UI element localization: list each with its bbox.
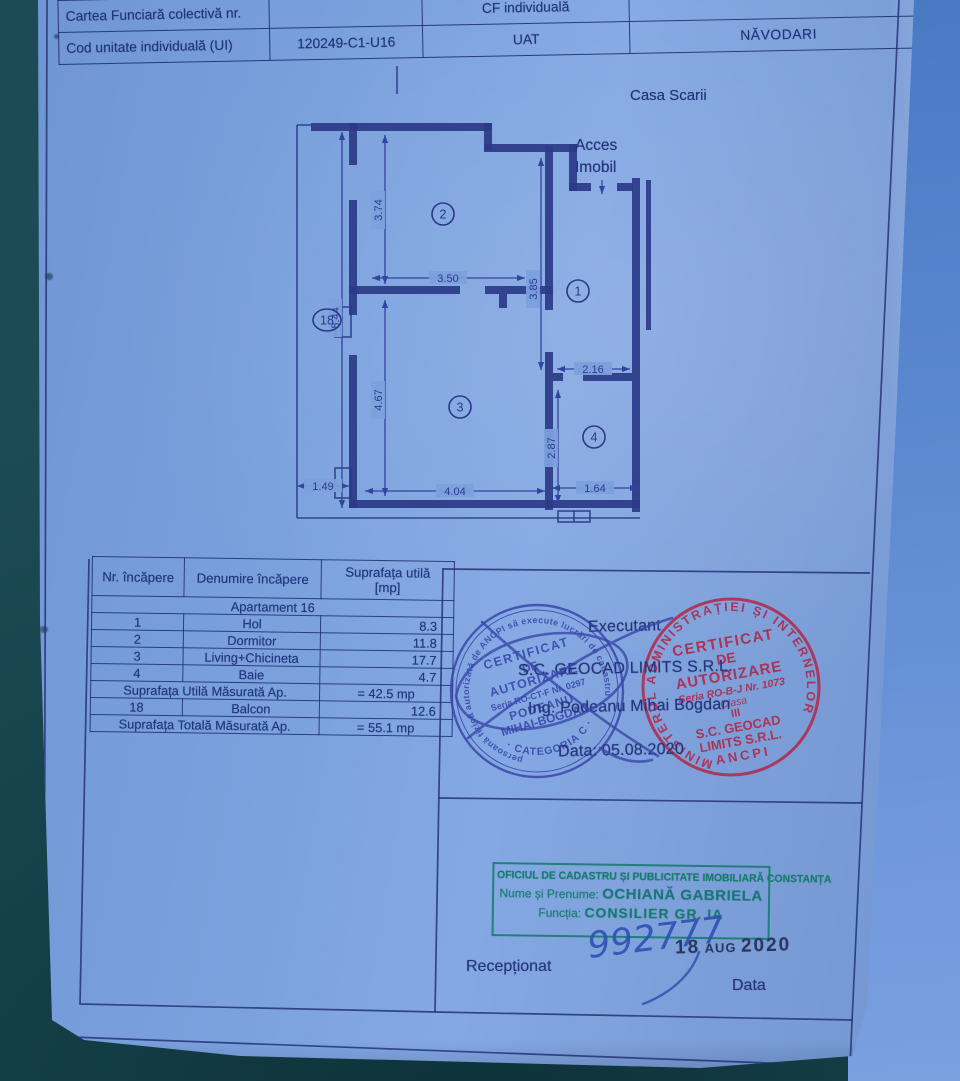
col-room-name: Denumire încăpere [184, 558, 322, 599]
dimension-label: 3.74 [373, 199, 385, 220]
plan-walls [311, 123, 651, 512]
ocpi-role-label: Funcția: [538, 906, 581, 921]
room-name: Hol [183, 614, 320, 633]
room-number-badge: 1 [575, 285, 582, 299]
header-table: Cartea Funciară colectivă nr. CF individ… [57, 0, 928, 65]
cf-collective-value [269, 0, 423, 28]
room-area: 8.3 [320, 616, 453, 635]
access-label-line1: Acces [575, 137, 617, 154]
rooms-header-row: Nr. încăpere Denumire încăpere Suprafața… [92, 557, 455, 601]
uat-value: NĂVODARI [629, 16, 928, 54]
col-room-number: Nr. încăpere [92, 557, 185, 597]
dimension-label: 3.85 [528, 278, 540, 299]
signature-scribble [440, 588, 710, 798]
total-value: = 55.1 mp [319, 718, 452, 737]
dimension-label: 3.50 [437, 273, 458, 285]
uat-label: UAT [422, 22, 630, 58]
col-room-area-line1: Suprafața utilă [345, 565, 430, 581]
floor-plan: 8.44 3.74 4.67 3.85 2.87 3.50 2.16 1.49 … [285, 60, 725, 530]
room-name: Balcon [182, 699, 319, 718]
room-nr: 18 [90, 697, 182, 715]
room-name: Dormitor [183, 631, 320, 650]
registration-number-handwritten: 992777 [583, 912, 753, 1022]
room-name: Baie [183, 665, 320, 684]
room-area: 17.7 [320, 650, 453, 669]
total-row: Suprafața Totală Măsurată Ap. = 55.1 mp [90, 714, 452, 736]
registration-number-text: 992777 [585, 912, 726, 967]
ui-code-value: 120249-C1-U16 [269, 26, 423, 61]
room-area: 4.7 [320, 667, 453, 686]
room-nr: 3 [91, 646, 183, 664]
document-sheet: Cartea Funciară colectivă nr. CF individ… [0, 0, 960, 1081]
room-nr: 2 [91, 629, 183, 647]
room-name: Living+Chicineta [183, 648, 320, 667]
room-number-badge: 4 [591, 431, 598, 445]
received-label: Recepționat [466, 958, 551, 976]
punch-hole [45, 273, 53, 280]
ocpi-office-line: OFICIUL DE CADASTRU ȘI PUBLICITATE IMOBI… [497, 869, 766, 885]
access-label-line2: Imobil [575, 159, 616, 176]
room-area: 11.8 [320, 633, 453, 652]
pen-flourish [643, 952, 699, 1004]
dimension-label: 4.04 [444, 486, 465, 498]
rooms-table: Nr. încăpere Denumire încăpere Suprafața… [90, 556, 455, 737]
ocpi-name-label: Nume și Prenume: [499, 886, 599, 901]
staircase-label: Casa Scarii [630, 87, 707, 104]
room-nr: 1 [91, 613, 183, 631]
col-room-area: Suprafața utilă [mp] [321, 560, 455, 601]
ui-code-label: Cod unitate individuală (UI) [58, 28, 270, 64]
dimension-label: 4.67 [373, 389, 385, 410]
room-nr: 4 [91, 663, 183, 681]
dimension-label: 1.49 [312, 481, 333, 493]
cf-collective-label: Cartea Funciară colectivă nr. [58, 0, 270, 32]
total-label: Suprafața Totală Măsurată Ap. [90, 714, 319, 734]
ocpi-name-value: OCHIANĂ GABRIELA [602, 886, 763, 905]
room-number-badge: 18 [320, 314, 334, 328]
room-number-badge: 3 [457, 401, 464, 415]
room-number-badge: 2 [440, 208, 447, 222]
room-area: 12.6 [319, 701, 452, 720]
dimension-label: 1.64 [584, 483, 605, 495]
dimension-label: 2.16 [582, 364, 603, 376]
subtotal-value: = 42.5 mp [320, 684, 453, 703]
punch-hole [40, 626, 48, 633]
dimension-label: 2.87 [546, 437, 558, 458]
col-room-area-line2: [mp] [375, 580, 401, 595]
